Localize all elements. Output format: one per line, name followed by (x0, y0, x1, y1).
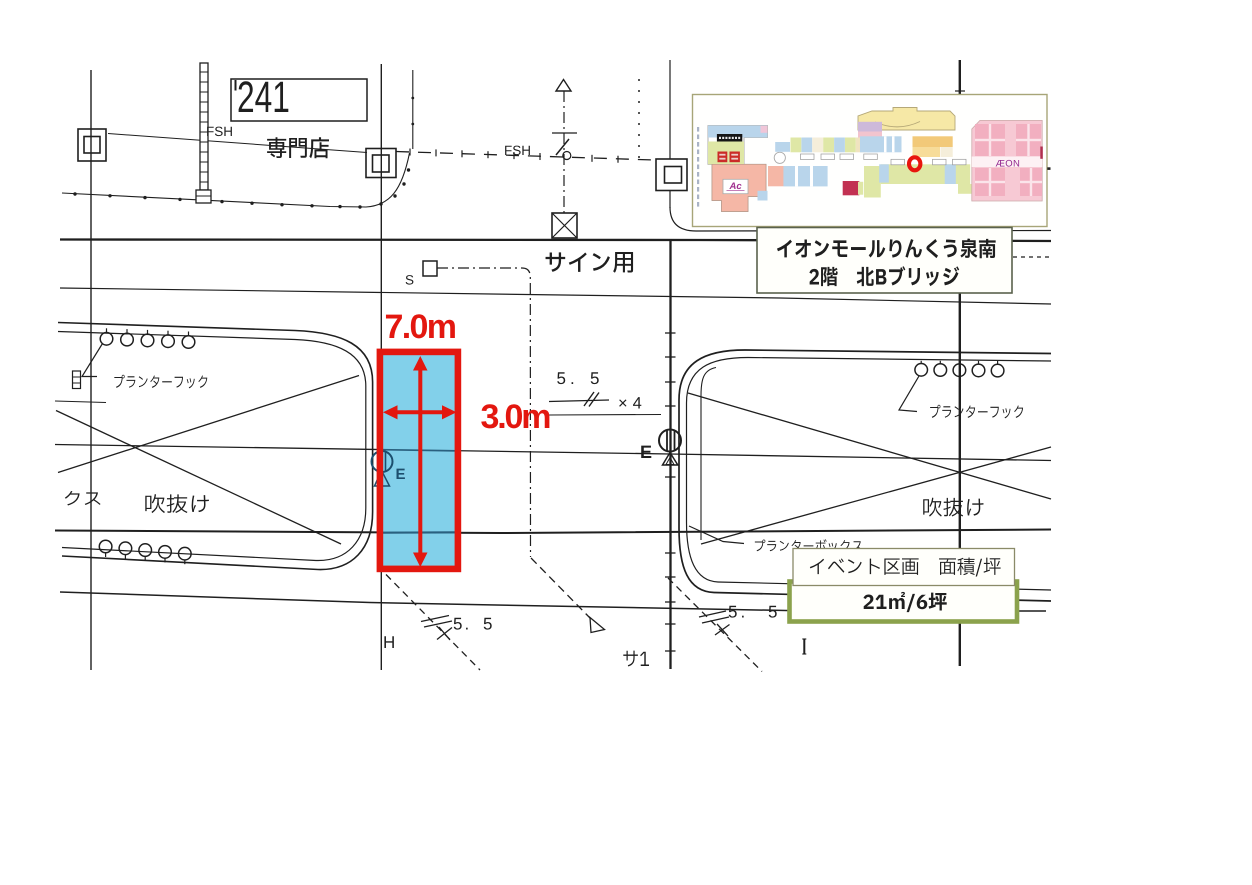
svg-text:5.: 5. (453, 615, 471, 634)
svg-text:5.: 5. (557, 369, 579, 388)
svg-text:E: E (640, 442, 652, 462)
svg-text:3.0m: 3.0m (481, 398, 552, 436)
svg-text:5.: 5. (728, 603, 748, 622)
svg-text:E: E (396, 466, 406, 483)
svg-text:×4: ×4 (618, 395, 647, 413)
svg-text:FSH: FSH (206, 124, 233, 139)
svg-text:241: 241 (237, 73, 290, 122)
svg-text:S: S (405, 273, 414, 288)
svg-text:FSH: FSH (504, 143, 531, 158)
svg-text:5: 5 (590, 369, 599, 388)
svg-text:H: H (383, 633, 395, 652)
svg-text:5: 5 (768, 603, 777, 622)
svg-text:5: 5 (483, 615, 492, 634)
svg-text:ÆON: ÆON (996, 159, 1021, 170)
svg-text:7.0m: 7.0m (385, 308, 458, 346)
